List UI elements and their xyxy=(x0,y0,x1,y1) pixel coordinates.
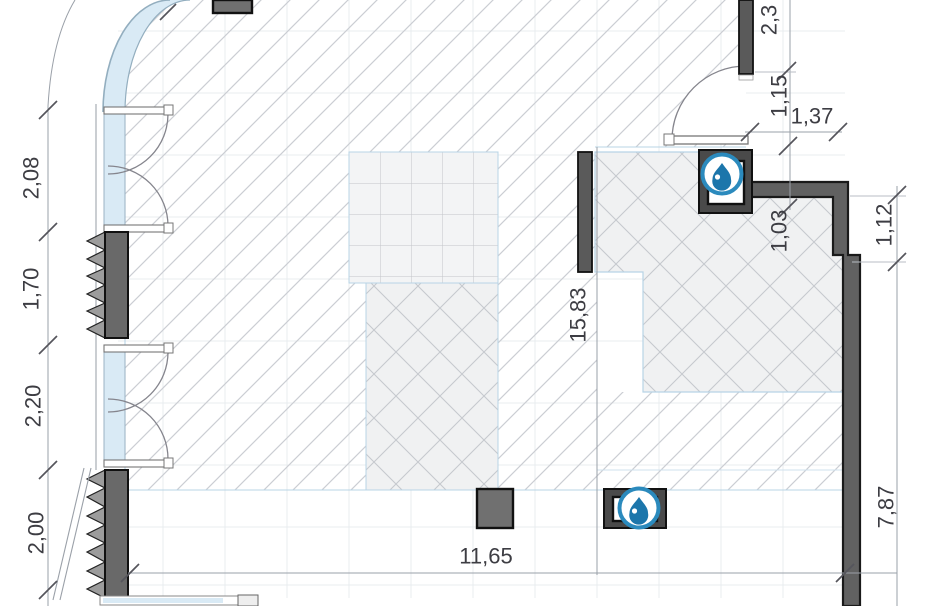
water-drop-icon xyxy=(620,489,659,528)
dim-label-1-15: 1,15 xyxy=(767,75,792,118)
floor-plan-canvas: 2,08 1,70 2,20 2,00 15,83 11,65 2,3 1,15… xyxy=(0,0,926,606)
water-drop-icon xyxy=(703,155,742,194)
door-leaf xyxy=(672,136,748,144)
wall-strip-center xyxy=(578,152,592,272)
water-fixture-top xyxy=(699,150,752,213)
dim-label-1-12: 1,12 xyxy=(872,204,897,247)
south-window xyxy=(100,595,258,606)
dim-label-15-83: 15,83 xyxy=(566,287,591,342)
room-floor-hatch-southeast xyxy=(597,392,843,490)
dim-label-2-08: 2,08 xyxy=(19,157,44,200)
wall-strip-northeast xyxy=(739,0,753,74)
dim-label-11-65: 11,65 xyxy=(459,544,512,569)
dim-label-1-70: 1,70 xyxy=(19,268,44,311)
dim-label-2-20: 2,20 xyxy=(21,385,46,428)
floor-plan-drawing: 2,08 1,70 2,20 2,00 15,83 11,65 2,3 1,15… xyxy=(0,0,926,606)
tiled-area-center xyxy=(366,283,498,490)
column xyxy=(477,489,513,528)
grid-platform xyxy=(349,152,498,283)
dim-label-2-3: 2,3 xyxy=(757,5,782,36)
water-fixture-bottom xyxy=(604,489,666,529)
wall-strip-northeast-sill xyxy=(739,75,753,80)
door-jamb xyxy=(664,134,674,145)
dim-label-7-87: 7,87 xyxy=(874,486,899,529)
dim-label-1-37: 1,37 xyxy=(791,104,834,129)
dim-label-1-03: 1,03 xyxy=(767,210,792,253)
dim-label-2-00: 2,00 xyxy=(24,512,49,555)
wall-pier-top xyxy=(213,0,252,13)
